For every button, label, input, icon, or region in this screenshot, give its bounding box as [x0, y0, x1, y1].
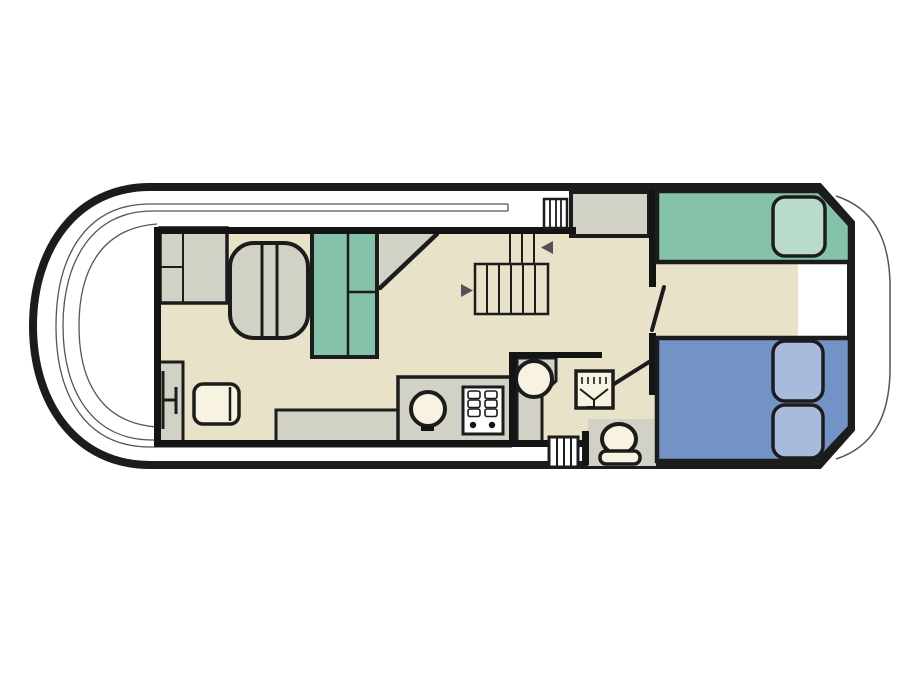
single-berth — [657, 191, 850, 262]
kitchen-sink — [411, 392, 445, 426]
stove — [463, 387, 503, 434]
boat-floor-plan-canvas — [0, 0, 899, 674]
bow-cabinet — [160, 228, 227, 303]
toilet — [600, 424, 640, 464]
double-berth — [657, 338, 850, 461]
boat-floor-plan — [0, 0, 899, 674]
side-deck-steps-top — [544, 199, 567, 228]
toilet-base — [600, 451, 640, 464]
double-berth-pillow-2 — [773, 405, 823, 458]
side-deck-steps-bottom — [549, 437, 578, 467]
shower — [576, 371, 613, 408]
aft-cabin-floor — [656, 262, 798, 339]
saloon-bench — [312, 229, 377, 357]
single-berth-pillow — [773, 197, 825, 256]
deck-locker — [571, 192, 649, 236]
stove-knob-left — [470, 422, 476, 428]
stove-knob-right — [489, 422, 495, 428]
double-berth-pillow-1 — [773, 341, 823, 401]
bathroom-basin — [516, 361, 552, 397]
kitchen-counter — [398, 377, 512, 443]
dinette — [230, 243, 308, 338]
sink-tap — [421, 426, 434, 431]
sideboard-counter — [276, 410, 400, 443]
helm-seat — [194, 384, 239, 424]
